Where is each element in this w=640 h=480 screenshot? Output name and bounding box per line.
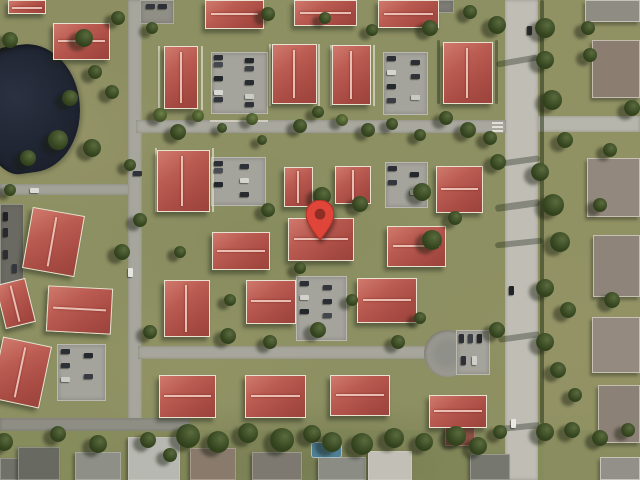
tree (89, 435, 107, 453)
tree (270, 428, 294, 452)
tree (483, 131, 497, 145)
roof-ridge (217, 250, 264, 252)
crosswalk-stripe (492, 122, 503, 124)
tree (312, 106, 324, 118)
car (61, 377, 70, 382)
tree (0, 433, 13, 451)
car (214, 182, 223, 187)
apartment-building (246, 280, 296, 324)
roof-ridge (363, 299, 412, 301)
car (323, 285, 332, 290)
car (388, 166, 397, 171)
car (146, 4, 155, 9)
car (214, 90, 223, 95)
apartment-building (159, 375, 216, 418)
car (387, 56, 396, 61)
apartment-building (0, 278, 36, 329)
roof-ridge (466, 48, 468, 98)
roof-ridge (14, 347, 27, 398)
house (470, 454, 510, 480)
car (245, 94, 254, 99)
car (240, 192, 249, 197)
tree (624, 100, 640, 116)
car (3, 250, 8, 259)
car (245, 102, 254, 107)
apartment-building (245, 375, 306, 418)
neighbor-building (598, 385, 640, 443)
apartment-building (8, 0, 46, 14)
apartment-building (22, 207, 85, 277)
car (468, 334, 473, 343)
tree (535, 18, 555, 38)
car (323, 299, 332, 304)
crosswalk-stripe (492, 126, 503, 128)
hedge-row (540, 0, 544, 424)
car (511, 419, 516, 428)
roof-ridge (10, 286, 21, 322)
house (75, 452, 121, 480)
apartment-building (164, 280, 210, 337)
tree (415, 433, 433, 451)
roof-ridge (12, 7, 42, 9)
swimming-pool (311, 442, 342, 458)
road (505, 0, 538, 480)
roof-ridge (384, 13, 434, 15)
roof-ridge (434, 410, 481, 412)
road (0, 184, 130, 195)
apartment-building (436, 166, 483, 213)
crosswalk-stripe (492, 130, 503, 132)
roof-ridge (185, 285, 187, 331)
apartment-building (46, 285, 113, 334)
walkway (210, 120, 268, 122)
tree (105, 85, 119, 99)
tree (83, 139, 101, 157)
apartment-building (443, 42, 493, 104)
hedge-row (437, 40, 440, 104)
roof-ridge (181, 156, 183, 206)
tree (174, 246, 186, 258)
apartment-building (53, 23, 110, 60)
car (214, 55, 223, 60)
roof-ridge (53, 307, 106, 312)
car (300, 309, 309, 314)
roof-ridge (393, 245, 441, 247)
car (477, 334, 482, 343)
car (387, 98, 396, 103)
apartment-building (357, 278, 417, 323)
walkway (373, 45, 375, 106)
tree (220, 328, 236, 344)
apartment-building (335, 166, 371, 204)
roof-ridge (164, 395, 210, 397)
tree (463, 5, 477, 19)
roof-ridge (58, 40, 104, 42)
car (240, 164, 249, 169)
apartment-building (205, 0, 264, 29)
tree (257, 135, 267, 145)
roof-ridge (180, 52, 182, 103)
hedge-row (495, 40, 498, 104)
tree (384, 428, 404, 448)
car (300, 281, 309, 286)
tree (238, 423, 258, 443)
tree (550, 362, 566, 378)
car (410, 172, 419, 177)
house (18, 447, 60, 480)
car (461, 356, 466, 365)
car (472, 356, 477, 365)
tree (224, 294, 236, 306)
car (388, 180, 397, 185)
roof-ridge (47, 217, 58, 267)
house (252, 452, 302, 480)
tree (88, 65, 102, 79)
location-pin-marker[interactable] (306, 200, 334, 240)
house (368, 451, 412, 480)
car (245, 66, 254, 71)
tree (143, 325, 157, 339)
car (527, 26, 532, 35)
car (411, 95, 420, 100)
car (158, 4, 167, 9)
car (245, 80, 254, 85)
apartment-building (429, 395, 487, 428)
car (214, 76, 223, 81)
car (214, 161, 223, 166)
car (411, 74, 420, 79)
car (3, 212, 8, 221)
car (240, 178, 249, 183)
tree (111, 11, 125, 25)
pin-body (306, 200, 334, 240)
car (245, 58, 254, 63)
roof-ridge (251, 300, 291, 302)
tree (557, 132, 573, 148)
car (84, 353, 93, 358)
car (214, 168, 223, 173)
tree (489, 322, 505, 338)
roof-ridge (352, 170, 354, 200)
apartment-building (0, 336, 52, 408)
apartment-building (164, 46, 198, 109)
roof-ridge (211, 13, 259, 15)
apartment-building (157, 150, 210, 212)
tree (536, 333, 554, 351)
road (128, 0, 142, 428)
tree (303, 425, 321, 443)
walkway (269, 44, 271, 106)
walkway (212, 148, 214, 212)
tree (550, 232, 570, 252)
car (30, 188, 39, 193)
apartment-building (272, 44, 317, 104)
tree (536, 423, 554, 441)
roof-ridge (441, 188, 479, 190)
apartment-building (330, 375, 390, 416)
house (190, 448, 236, 480)
tree (603, 143, 617, 157)
tree (564, 422, 580, 438)
apartment-building (378, 0, 439, 28)
car (214, 97, 223, 102)
road (538, 116, 640, 132)
car (387, 70, 396, 75)
tree (536, 279, 554, 297)
neighbor-building (585, 0, 640, 22)
roof-ridge (350, 51, 352, 100)
walkway (158, 46, 160, 110)
house (128, 437, 180, 480)
walkway (201, 46, 203, 110)
tree (294, 262, 306, 274)
house (318, 457, 366, 480)
tree (490, 154, 506, 170)
car (12, 264, 17, 273)
tree (488, 16, 506, 34)
car (214, 62, 223, 67)
satellite-map-canvas[interactable] (0, 0, 640, 480)
tree (542, 90, 562, 110)
car (128, 268, 133, 277)
roof-ridge (300, 12, 351, 14)
car (133, 171, 142, 176)
car (61, 363, 70, 368)
roof-ridge (293, 50, 295, 99)
car (411, 60, 420, 65)
apartment-building (332, 45, 371, 105)
car (410, 190, 419, 195)
apartment-building (212, 232, 270, 270)
tree (568, 388, 582, 402)
car (509, 286, 514, 295)
apartment-building (294, 0, 357, 26)
neighbor-building (600, 457, 640, 480)
roof-ridge (251, 395, 301, 397)
tree (448, 211, 462, 225)
road (136, 120, 506, 133)
car (61, 349, 70, 354)
pin-dot (315, 209, 326, 220)
tree (536, 51, 554, 69)
roof-ridge (336, 394, 385, 396)
neighbor-building (593, 235, 640, 297)
neighbor-building (587, 158, 640, 217)
walkway (318, 44, 320, 106)
roof-ridge (297, 171, 299, 203)
neighbor-building (592, 40, 640, 98)
car (300, 295, 309, 300)
house (445, 426, 475, 446)
tree (542, 194, 564, 216)
tree (560, 302, 576, 318)
car (323, 313, 332, 318)
car (84, 374, 93, 379)
road (0, 418, 190, 431)
car (387, 84, 396, 89)
tree (581, 21, 595, 35)
car (459, 334, 464, 343)
neighbor-building (592, 317, 640, 373)
tree (366, 24, 378, 36)
apartment-building (387, 226, 446, 267)
car (3, 228, 8, 237)
road (138, 346, 430, 359)
